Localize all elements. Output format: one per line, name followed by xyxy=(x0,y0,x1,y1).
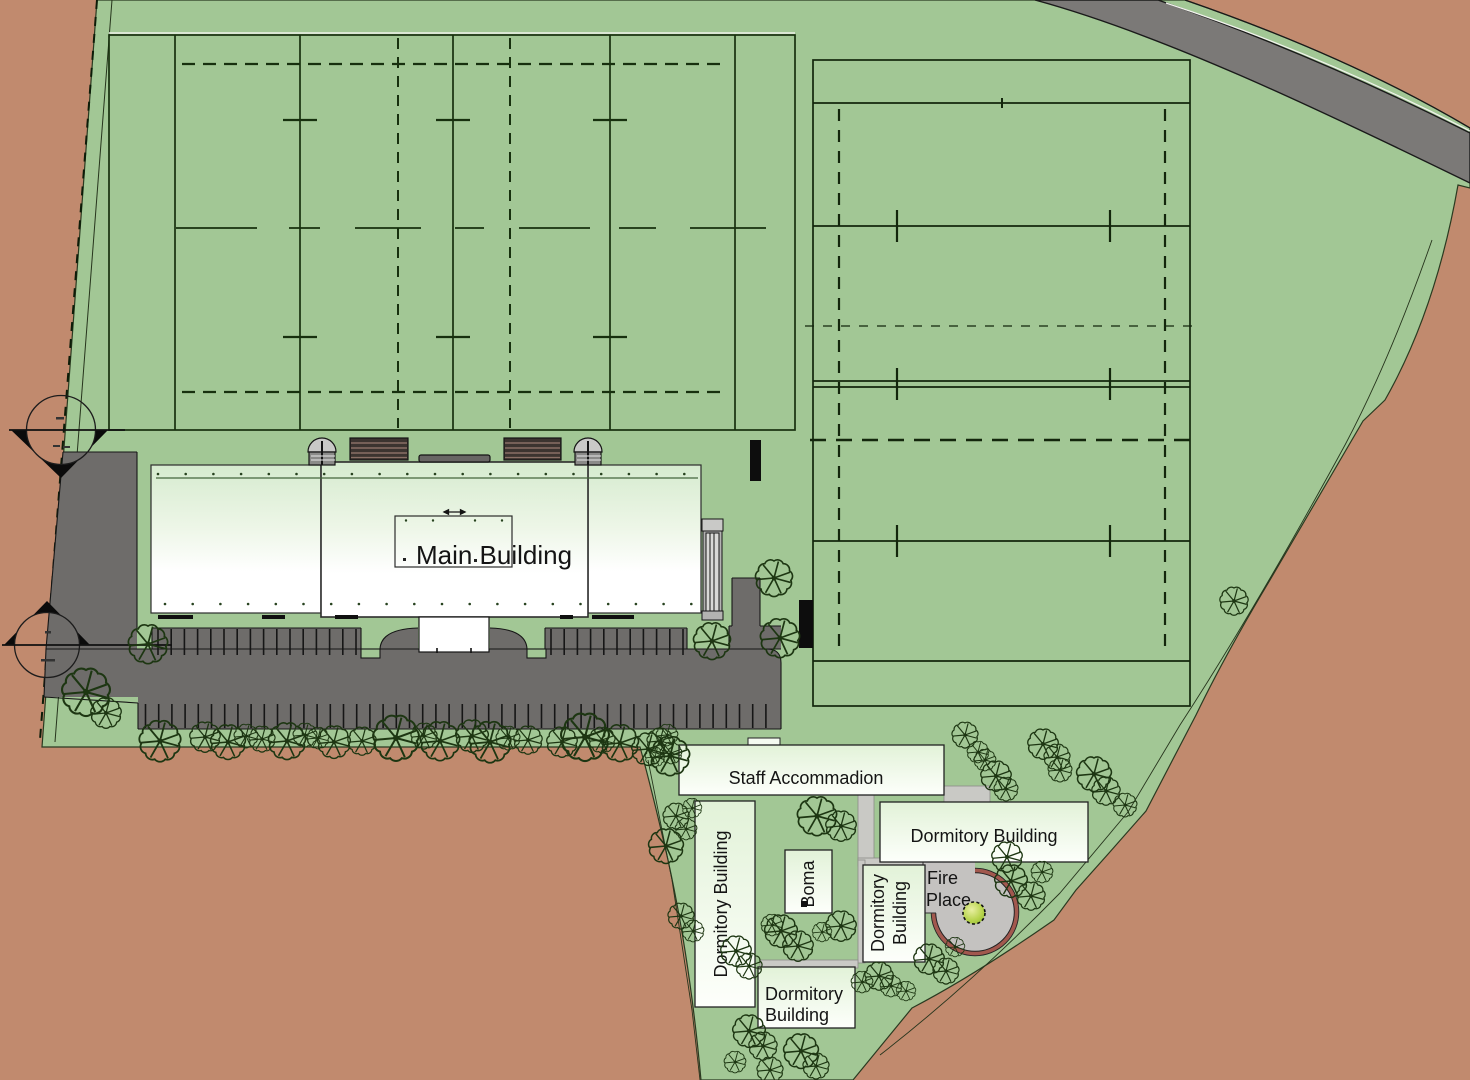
svg-text:Dormitory Building: Dormitory Building xyxy=(910,826,1057,846)
svg-text:Dormitory: Dormitory xyxy=(868,874,888,952)
svg-text:Building: Building xyxy=(765,1005,829,1025)
svg-text:Dormitory: Dormitory xyxy=(765,984,843,1004)
svg-text:Building: Building xyxy=(890,881,910,945)
svg-text:Main Building: Main Building xyxy=(416,540,572,570)
svg-text:Fire: Fire xyxy=(927,868,958,888)
svg-text:Staff Accommadion: Staff Accommadion xyxy=(729,768,884,788)
svg-text:Boma: Boma xyxy=(798,860,818,908)
